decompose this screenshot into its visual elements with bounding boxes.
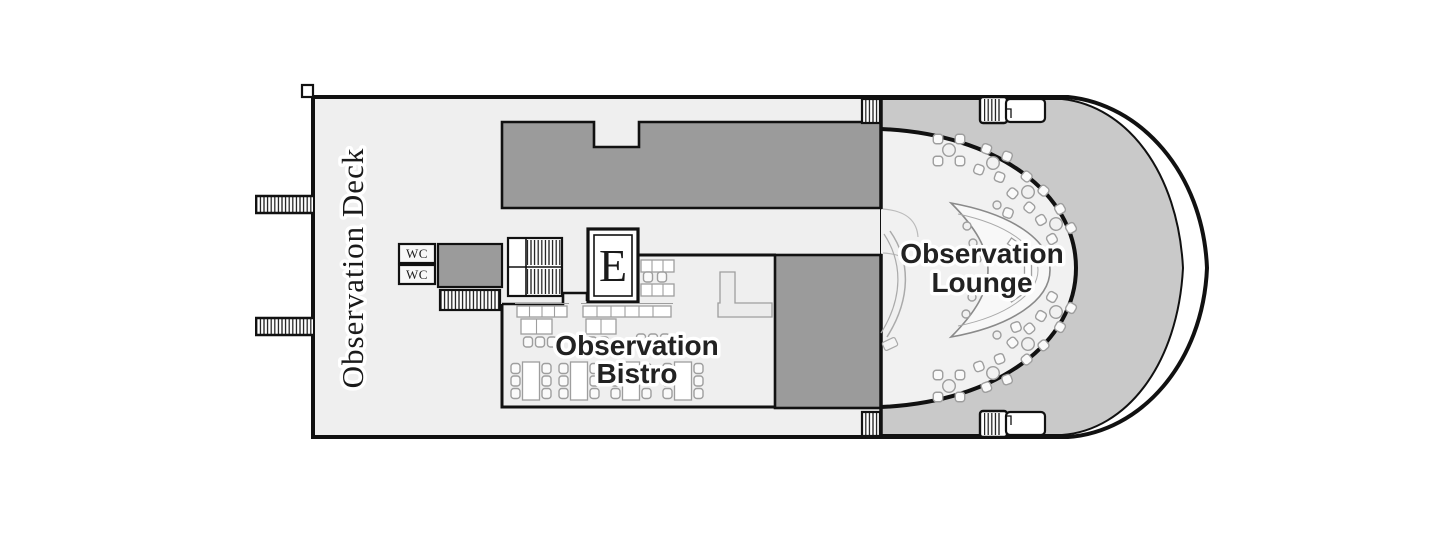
bow-door-top [1006, 99, 1045, 122]
utility-room [438, 244, 502, 287]
stern-fitting [302, 85, 313, 97]
bow-stairs-bottom [980, 411, 1045, 437]
elevator: E [588, 229, 638, 302]
wc-upper-label: WC [406, 246, 428, 261]
stairs-chord-top [862, 99, 880, 123]
wc-lower-label: WC [406, 267, 428, 282]
lounge-label-line2: Lounge [931, 267, 1032, 298]
bow-door-bottom [1006, 412, 1045, 435]
service-block [775, 255, 881, 408]
stairs-chord-bottom [862, 412, 880, 436]
bistro-table [559, 362, 599, 400]
funnel-structure [502, 122, 881, 208]
stairs-utility [440, 290, 500, 310]
deck-plan-screenshot: WC WC E [0, 0, 1448, 544]
gangway-ladder-upper [255, 195, 313, 214]
deck-plan-svg: WC WC E [0, 0, 1448, 544]
wc-room-upper: WC [399, 244, 435, 263]
deck-name-label: Observation Deck [335, 148, 370, 389]
stair-block [508, 238, 562, 296]
bow-stairs-top [980, 97, 1045, 123]
bistro-table [511, 362, 551, 400]
gangway-ladder-lower [255, 317, 313, 336]
wc-room-lower: WC [399, 265, 435, 284]
elevator-label: E [599, 240, 627, 291]
lounge-label-line1: Observation [900, 238, 1063, 269]
bistro-label-line1: Observation [555, 330, 718, 361]
bistro-label-line2: Bistro [597, 358, 678, 389]
